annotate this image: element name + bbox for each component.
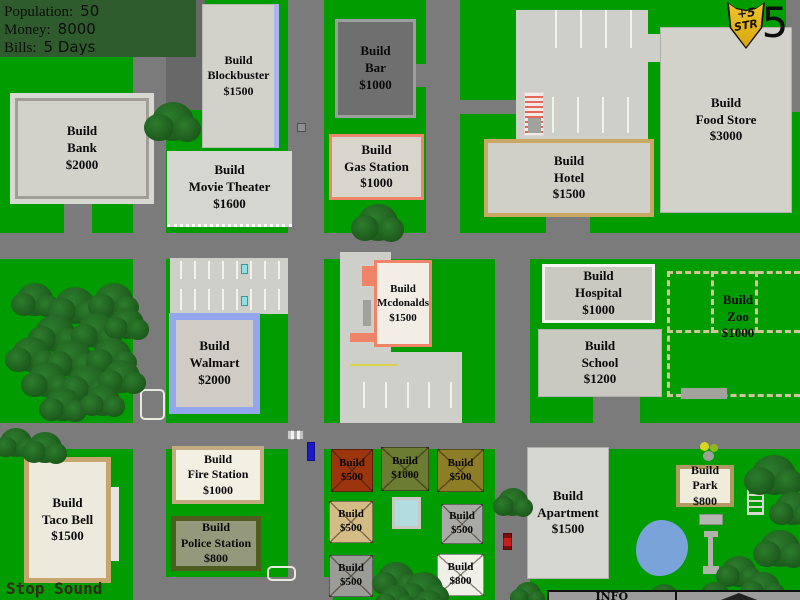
road-vertical-center — [288, 0, 324, 600]
plot-label-line: Build — [583, 268, 613, 285]
build-plot-taco-bell[interactable]: BuildTaco Bell$1500 — [24, 457, 111, 583]
parking-line — [363, 382, 365, 408]
parking-line — [264, 289, 266, 310]
build-plot-house[interactable]: Build$500 — [441, 504, 483, 544]
plot-label-line: $1500 — [224, 84, 254, 100]
tree-icon — [152, 102, 194, 141]
build-plot-apartment[interactable]: BuildApartment$1500 — [527, 447, 609, 579]
plot-label-line: Build — [361, 142, 391, 159]
parking-line — [630, 10, 632, 48]
plot-label-line: $1000 — [722, 325, 755, 342]
plot-label-line: Build — [449, 510, 475, 524]
parking-line — [450, 382, 452, 408]
build-plot-house[interactable]: Build$500 — [437, 449, 484, 492]
plot-label-line: Build — [448, 457, 474, 471]
fire-escape-base — [528, 118, 541, 133]
plot-label-line: Build — [199, 338, 229, 355]
drive-thru-lane — [110, 487, 119, 561]
road-vertical-east — [495, 259, 530, 600]
plot-label-line: $800 — [693, 494, 717, 510]
white-car — [287, 430, 304, 440]
plot-label-line: $3000 — [710, 128, 743, 145]
plot-label-line: Build — [585, 338, 615, 355]
tree-icon — [45, 388, 81, 421]
parking-line — [236, 289, 238, 310]
plot-label-line: Hotel — [554, 170, 584, 187]
plot-label-line: Police Station — [181, 536, 251, 552]
parking-line — [407, 382, 409, 408]
build-plot-park[interactable]: BuildPark$800 — [676, 465, 734, 507]
parking-line — [264, 261, 266, 279]
plot-label-line: Build — [553, 488, 583, 505]
build-plot-house[interactable]: Build$500 — [331, 449, 373, 492]
parking-line — [552, 97, 554, 133]
road-vertical-bar — [426, 0, 460, 233]
build-plot-bar[interactable]: BuildBar$1000 — [335, 19, 416, 118]
plot-label-line: Build — [554, 153, 584, 170]
mcdonalds-detail — [363, 300, 371, 326]
plot-label-line: $1600 — [213, 196, 246, 213]
road-horizontal-south — [0, 423, 800, 449]
parking-line — [627, 97, 629, 133]
park-bench — [699, 514, 723, 525]
tree-icon — [110, 308, 144, 339]
plot-label-line: Movie Theater — [189, 179, 271, 196]
stop-sound-button[interactable]: Stop Sound — [6, 579, 102, 598]
turn-counter: 5 — [753, 0, 797, 46]
plot-label-line: Bar — [365, 60, 386, 77]
build-plot-fire-station[interactable]: BuildFire Station$1000 — [172, 446, 264, 504]
seesaw-pole — [708, 533, 713, 569]
plot-label-line: $1500 — [552, 521, 585, 538]
plot-label-line: Build — [360, 43, 390, 60]
plot-label-line: $1000 — [359, 77, 392, 94]
parking-line — [278, 261, 280, 279]
bills-value: 5 Days — [44, 38, 96, 56]
build-plot-walmart[interactable]: BuildWalmart$2000 — [169, 313, 260, 414]
tree-icon — [498, 488, 528, 516]
money-row: Money: 8000 — [4, 20, 196, 38]
parking-line — [580, 10, 582, 48]
build-plot-house[interactable]: Build$1000 — [381, 447, 429, 491]
plot-label-line: School — [582, 355, 619, 372]
build-plot-police-station[interactable]: BuildPolice Station$800 — [171, 516, 261, 571]
bills-row: Bills: 5 Days — [4, 38, 196, 56]
plot-label-line: Build — [224, 53, 252, 69]
plot-label-line: Taco Bell — [42, 512, 93, 529]
parking-line — [208, 289, 210, 310]
plot-label-line: Park — [692, 478, 717, 494]
parking-line — [385, 382, 387, 408]
empty-lot-outline — [267, 566, 296, 581]
plot-label-line: $800 — [204, 551, 228, 567]
plot-label-line: $1000 — [360, 175, 393, 192]
money-label: Money: — [4, 22, 51, 39]
plot-label-line: $500 — [341, 471, 363, 485]
city-map: BuildBank$2000BuildBlockbuster$1500Build… — [0, 0, 800, 600]
info-bar[interactable]: INFO — [547, 590, 800, 600]
chevron-up-icon — [713, 593, 765, 600]
plot-label-line: $500 — [340, 576, 362, 590]
plot-label-line: Build — [67, 123, 97, 140]
tree-icon — [515, 582, 541, 600]
parking-line — [605, 10, 607, 48]
parking-line-yellow — [350, 364, 397, 366]
plot-label-line: $500 — [340, 522, 362, 536]
build-plot-school[interactable]: BuildSchool$1200 — [538, 329, 662, 397]
cart-return — [241, 264, 248, 274]
population-value: 50 — [80, 2, 99, 20]
population-label: Population: — [4, 4, 73, 21]
driveway-bank — [64, 200, 92, 235]
tree-icon — [752, 455, 796, 495]
driveway-school — [593, 395, 640, 425]
tree-icon — [358, 204, 398, 241]
build-plot-gas-station[interactable]: BuildGas Station$1000 — [329, 134, 424, 200]
plot-label-line: Build — [723, 292, 753, 309]
plot-label-line: $1000 — [203, 483, 233, 499]
plot-label-line: Bank — [67, 140, 97, 157]
build-plot-bank[interactable]: BuildBank$2000 — [10, 93, 154, 204]
build-plot-mcdonalds[interactable]: BuildMcdonalds$1500 — [374, 260, 432, 347]
plot-label-line: Build — [390, 282, 416, 296]
plot-label-line: $1200 — [584, 371, 617, 388]
parking-line — [194, 289, 196, 310]
build-plot-zoo[interactable]: BuildZoo$1000 — [694, 280, 782, 354]
parking-line — [577, 97, 579, 133]
parking-line — [250, 289, 252, 310]
plot-label-line: $1500 — [553, 186, 586, 203]
plot-label-line: Build — [214, 162, 244, 179]
plot-label-line: Fire Station — [188, 467, 249, 483]
manhole — [297, 123, 306, 132]
blue-car — [307, 442, 315, 461]
parking-line — [222, 289, 224, 310]
build-plot-food-store[interactable]: BuildFood Store$3000 — [660, 27, 792, 213]
parking-line — [180, 289, 182, 310]
hud-panel: Population: 50 Money: 8000 Bills: 5 Days — [0, 0, 196, 57]
zoo-slab — [681, 388, 727, 399]
driveway-bar — [415, 64, 460, 87]
parking-line — [555, 10, 557, 48]
bills-label: Bills: — [4, 40, 37, 57]
plot-label-line: Walmart — [190, 355, 240, 372]
driveway-parking — [458, 100, 518, 114]
red-car — [503, 533, 512, 550]
swimming-pool — [392, 497, 421, 529]
build-plot-hotel[interactable]: BuildHotel$1500 — [484, 139, 654, 217]
parking-line — [208, 261, 210, 279]
parking-line — [222, 261, 224, 279]
money-value: 8000 — [58, 20, 96, 38]
plot-label-line: Build — [339, 457, 365, 471]
plot-label-line: $1000 — [582, 302, 615, 319]
parking-line — [428, 382, 430, 408]
plot-label-line: Food Store — [696, 112, 757, 129]
plot-label-line: $1500 — [51, 528, 84, 545]
build-plot-movie-theater[interactable]: BuildMovie Theater$1600 — [167, 151, 292, 227]
plot-label-line: Gas Station — [344, 159, 409, 176]
plot-label-line: Build — [204, 452, 232, 468]
plot-label-line: Apartment — [537, 505, 598, 522]
road-vertical-west — [133, 0, 166, 600]
flower-rock — [703, 451, 714, 461]
plot-label-line: $500 — [451, 524, 473, 538]
plot-label-line: Build — [52, 495, 82, 512]
plot-label-line: Build — [392, 455, 418, 469]
plot-label-line: Build — [338, 562, 364, 576]
tree-icon — [28, 432, 62, 463]
parking-line — [602, 97, 604, 133]
park-pond — [636, 520, 688, 576]
plot-label-line: Build — [691, 463, 719, 479]
parking-lot-walmart — [170, 258, 288, 314]
tree-icon — [775, 492, 800, 525]
parking-line — [236, 261, 238, 279]
plot-label-line: Blockbuster — [207, 68, 269, 84]
plot-label-line: Zoo — [727, 309, 749, 326]
empty-lot-outline — [140, 389, 165, 420]
driveway-hotel — [546, 215, 590, 235]
flower — [700, 442, 709, 451]
build-plot-blockbuster[interactable]: BuildBlockbuster$1500 — [202, 4, 279, 148]
mcdonalds-lot — [340, 352, 462, 423]
plot-label-line: $800 — [450, 575, 472, 589]
tree-icon — [760, 530, 800, 567]
plot-label-line: Hospital — [575, 285, 622, 302]
plot-label-line: $1500 — [389, 311, 417, 325]
plot-label-line: $2000 — [66, 157, 99, 174]
cart-return — [241, 296, 248, 306]
plot-label-line: Mcdonalds — [377, 296, 429, 310]
plot-label-line: $1000 — [391, 469, 419, 483]
parking-line — [194, 261, 196, 279]
plot-label-line: $2000 — [198, 372, 231, 389]
tree-icon — [86, 385, 120, 416]
population-row: Population: 50 — [4, 2, 196, 20]
plot-label-line: Build — [711, 95, 741, 112]
info-toggle[interactable] — [677, 592, 800, 600]
plot-label-line: Build — [202, 520, 230, 536]
plot-label-line: Build — [338, 508, 364, 522]
info-label[interactable]: INFO — [549, 592, 675, 600]
plot-label-line: Build — [448, 561, 474, 575]
parking-line — [278, 289, 280, 310]
build-plot-house[interactable]: Build$500 — [329, 555, 373, 597]
parking-line — [180, 261, 182, 279]
build-plot-hospital[interactable]: BuildHospital$1000 — [542, 264, 655, 323]
parking-line — [250, 261, 252, 279]
plot-label-line: $500 — [450, 471, 472, 485]
build-plot-house[interactable]: Build$500 — [329, 501, 373, 543]
